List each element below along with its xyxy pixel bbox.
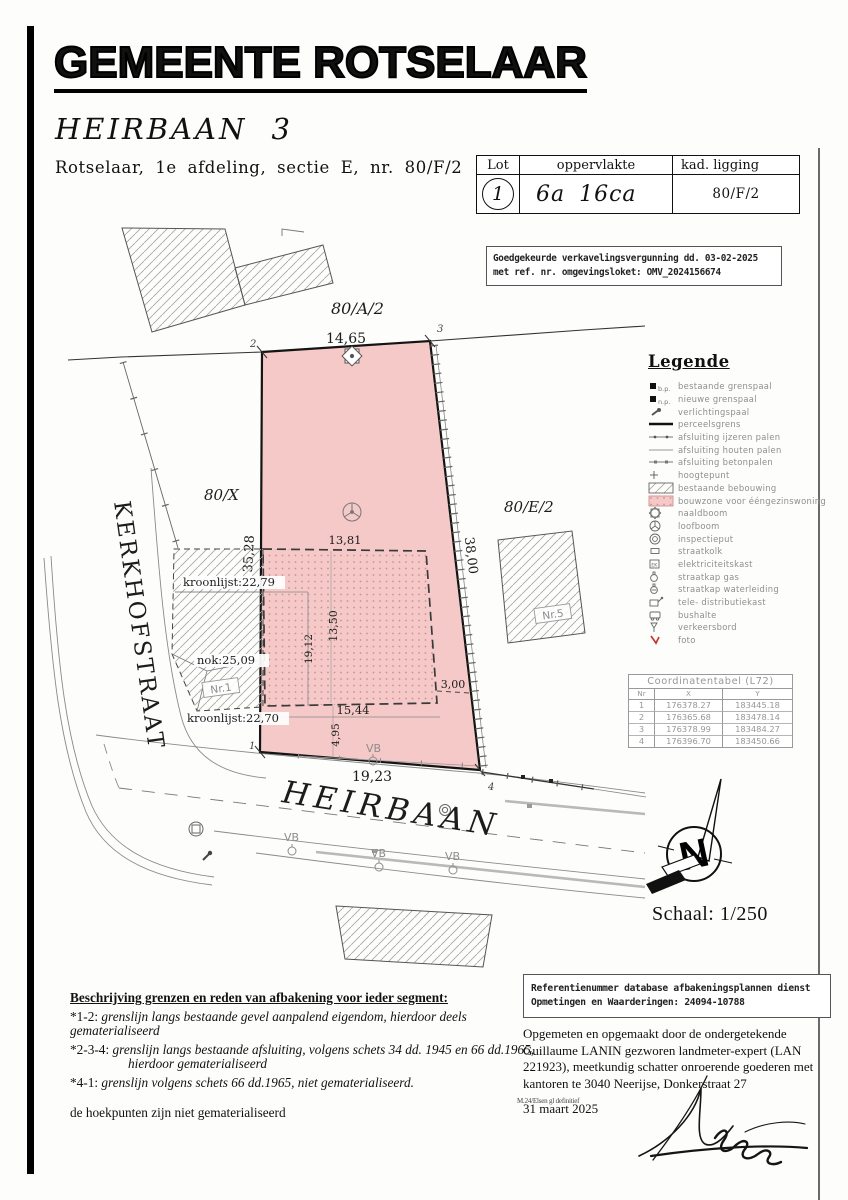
existing-building-icon [648,482,678,494]
dim-bz-below: 4,95 [330,723,342,746]
coordinate-table-header: Nr X Y [629,689,792,700]
coordinate-row: 3176378.99183484.27 [629,724,792,736]
legend-item: bushalte [648,608,820,621]
wooden-fence-icon [648,444,678,456]
legend-item: inspectieput [648,532,820,545]
legend-item: foto [648,634,820,647]
vb-label: VB [371,847,386,860]
existing-boundary-post-icon: b.p. [648,380,678,392]
dim-bottom: 19,23 [352,769,392,785]
iron-fence-icon [648,431,678,443]
point-1: 1 [249,741,255,752]
legend: Legende b.p. bestaande grenspaal n.p. ni… [648,352,820,646]
north-arrow: N [648,775,758,905]
dim-left: 35,28 [241,535,258,573]
lot-table: Lot oppervlakte kad. ligging 1 6a 16ca 8… [476,155,800,214]
parcel-label-80x: 80/X [204,486,240,504]
verlichtingspaal-icon [203,851,212,860]
height-nok: nok:25,09 [197,653,255,667]
height-point-icon [648,469,678,481]
legend-item: verlichtingspaal [648,405,820,418]
dim-bz-top: 13,81 [329,533,362,547]
inspection-pit-icon [648,533,678,545]
coordinate-row: 2176365.68183478.14 [629,712,792,724]
building-nr5 [498,531,585,643]
electricity-cabinet-icon: EK [648,558,678,570]
address-title: HEIRBAAN 3 [55,112,293,146]
cadastral-reference: Rotselaar, 1e afdeling, sectie E, nr. 80… [55,158,462,177]
description-footer: de hoekpunten zijn niet gematerialiseerd [70,1106,540,1120]
legend-item: verkeersbord [648,621,820,634]
site-plan-drawing: VB VB VB VB 80/A/2 80/X 80/E/2 14,65 19,… [30,215,670,975]
page-title: GEMEENTE ROTSELAAR [54,40,587,93]
parcel-label-80a2: 80/A/2 [331,299,384,318]
legend-item: straatkap gas [648,570,820,583]
surveyor-signature [595,1072,810,1167]
reference-line2: Opmetingen en Waarderingen: 24094-10788 [531,996,823,1010]
existing-buildings-north [122,228,333,332]
dim-bz-right: 3,00 [441,678,466,691]
deciduous-tree-icon [648,520,678,532]
gas-cap-icon [648,571,678,583]
ligging-col-header: kad. ligging [673,156,799,175]
vb-label: VB [445,850,460,863]
street-gully-icon [648,545,678,557]
legend-item: n.p. nieuwe grenspaal [648,393,820,406]
parcel-boundary-icon [648,418,678,430]
coordinate-row: 4176396.70183450.66 [629,736,792,747]
legend-title: Legende [648,352,820,371]
south-east-fence [482,772,646,797]
boundary-description: Beschrijving grenzen en reden van afbake… [70,991,540,1120]
lot-number-circle: 1 [482,178,514,210]
bus-stop-icon [648,609,678,621]
point-4: 4 [487,782,494,793]
legend-item: naaldboom [648,507,820,520]
point-2: 2 [249,339,256,350]
scale-label: Schaal: 1/250 [652,903,768,926]
description-heading: Beschrijving grenzen en reden van afbake… [70,991,540,1005]
legend-item: loofboom [648,520,820,533]
dim-bz-inner: 19,12 [303,634,315,664]
coordinate-table-title: Coordinatentabel (L72) [629,675,792,689]
legend-item: b.p. bestaande grenspaal [648,380,820,393]
dim-bz-height: 13,50 [327,610,340,642]
dim-bz-bottom: 15,44 [337,703,370,717]
lot-area-cell: 6a 16ca [520,175,673,213]
new-boundary-post-icon: n.p. [648,393,678,405]
legend-item: tele- distributiekast [648,596,820,609]
legend-item: straatkap waterleiding [648,583,820,596]
segment-2-3-4: grenslijn langs bestaande afsluiting, vo… [112,1042,534,1057]
height-kroonlijst-north: kroonlijst:22,79 [183,575,275,589]
building-south [336,906,492,967]
legend-item: afsluiting ijzeren palen [648,431,820,444]
telecom-cabinet-icon [648,596,678,608]
build-zone-icon [648,495,678,507]
concrete-fence-icon [648,456,678,468]
photo-direction-icon [648,634,678,646]
lot-col-header: Lot [477,156,520,175]
coordinate-row: 1176378.27183445.18 [629,700,792,712]
reference-line1: Referentienummer database afbakeningspla… [531,982,823,996]
segment-1-2: grenslijn langs bestaande gevel aanpalen… [70,1009,467,1038]
legend-item: straatkolk [648,545,820,558]
legend-item: perceelsgrens [648,418,820,431]
lot-number-cell: 1 [477,175,520,213]
point-3: 3 [437,324,443,335]
parcel-label-80e2: 80/E/2 [504,498,554,516]
vb-label: VB [284,831,299,844]
file-note: M.24/Elsen gl definitief [517,1097,579,1105]
area-col-header: oppervlakte [520,156,673,175]
height-kroonlijst-south: kroonlijst:22,70 [187,711,279,725]
coordinate-table: Coordinatentabel (L72) Nr X Y 1176378.27… [628,674,793,748]
street-kerkhofstraat: KERKHOFSTRAAT [108,499,169,752]
legend-item: bestaande bebouwing [648,482,820,495]
survey-plan-page: GEMEENTE ROTSELAAR HEIRBAAN 3 Rotselaar,… [0,0,848,1200]
traffic-sign-icon [648,621,678,633]
legend-item: afsluiting houten palen [648,443,820,456]
legend-item: afsluiting betonpalen [648,456,820,469]
light-pole-icon [648,406,678,418]
segment-4-1: grenslijn volgens schets 66 dd.1965, nie… [101,1075,414,1090]
vb-label: VB [366,742,381,755]
naaldboom-icon [342,346,362,366]
dim-top: 14,65 [326,331,366,347]
conifer-tree-icon [648,507,678,519]
svg-text:EK: EK [651,562,658,568]
lot-ligging-cell: 80/F/2 [673,175,799,213]
legend-item: EK elektriciteitskast [648,558,820,571]
legend-item: bouwzone voor ééngezinswoning [648,494,820,507]
reference-number-box: Referentienummer database afbakeningspla… [523,974,831,1018]
water-cap-icon [648,583,678,595]
legend-item: hoogtepunt [648,469,820,482]
inspectieput-square-icon [189,822,203,836]
